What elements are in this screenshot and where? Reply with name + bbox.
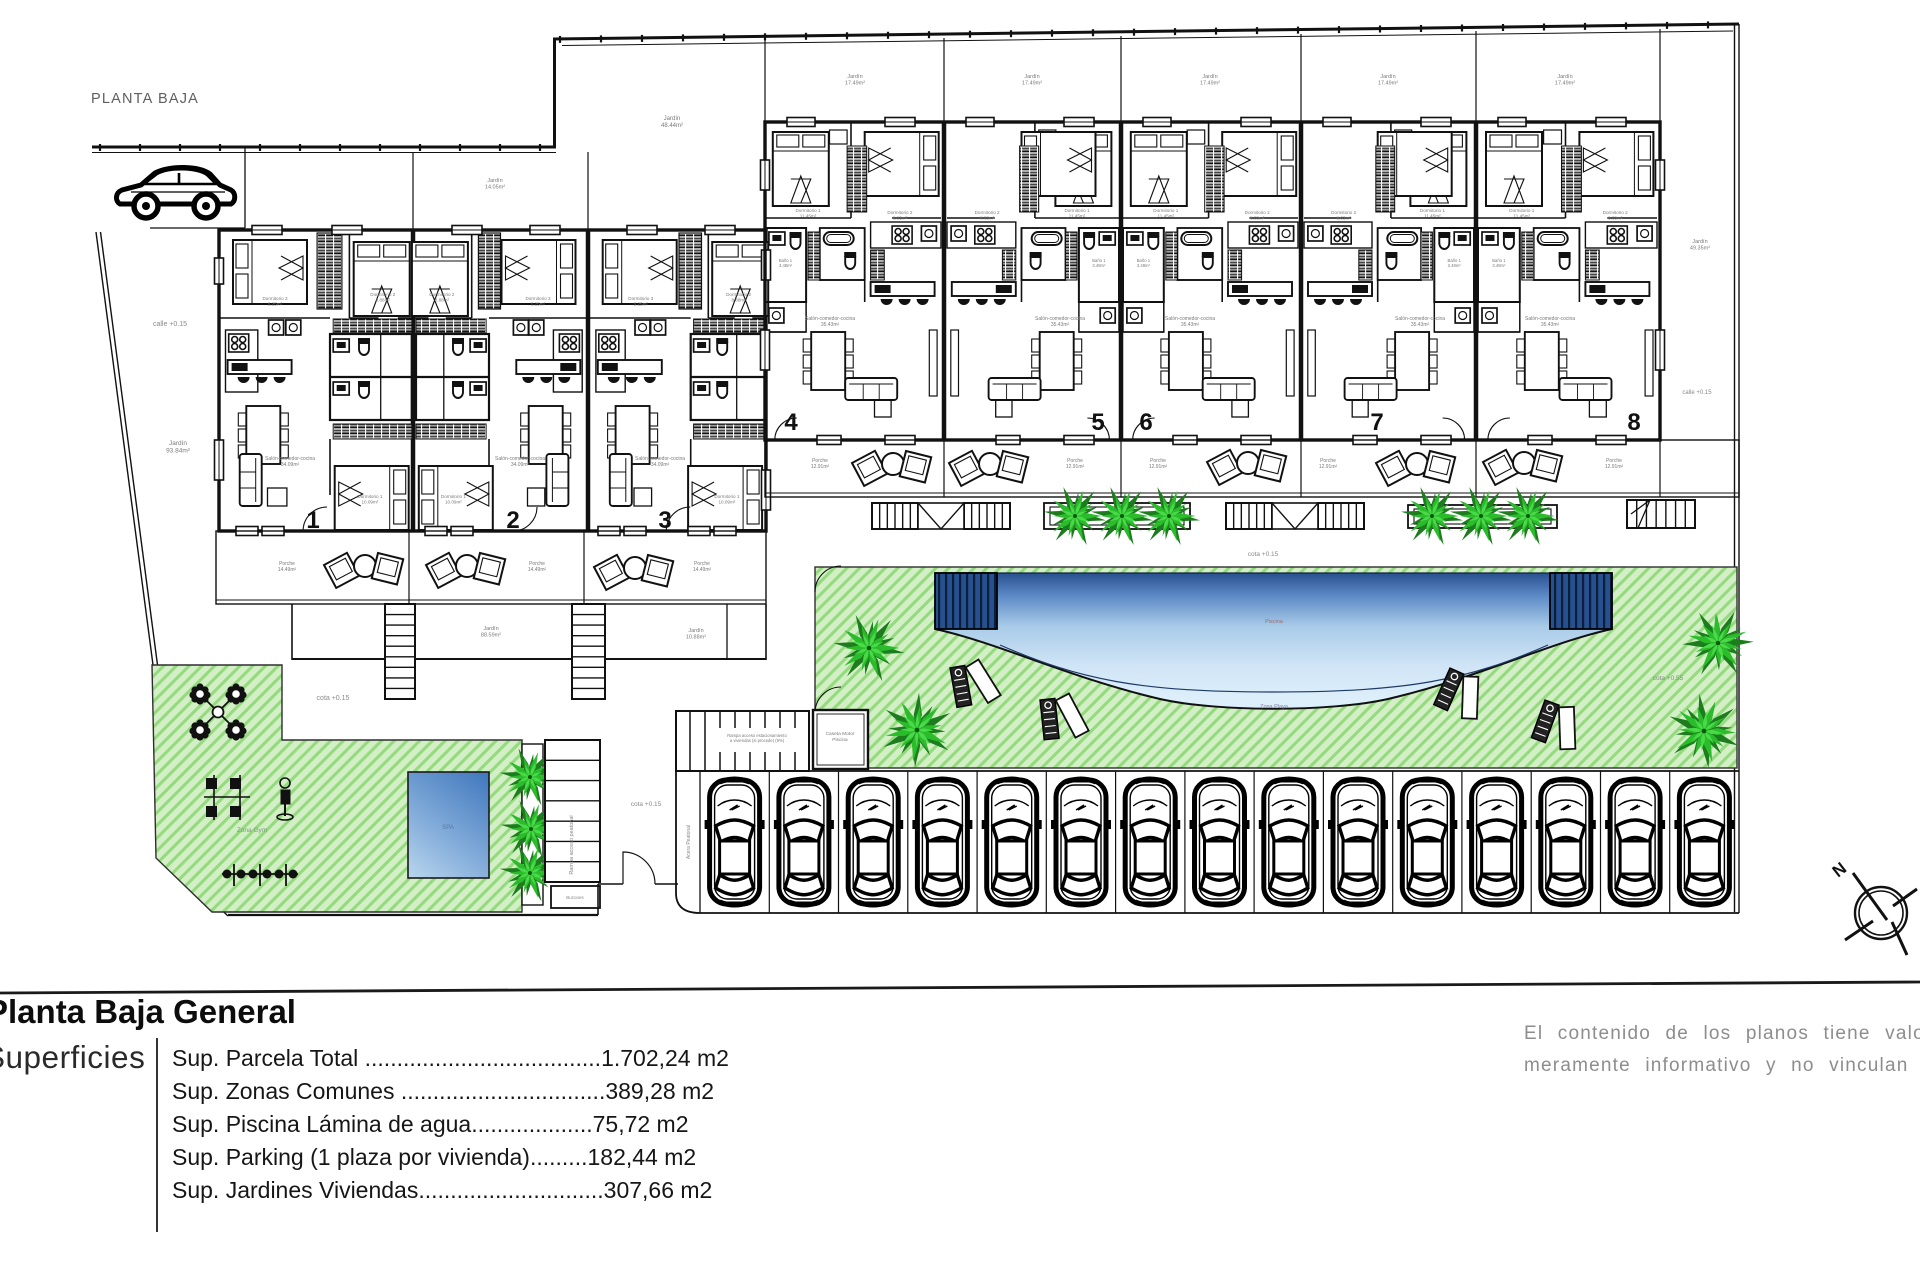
svg-text:Buzones: Buzones <box>566 895 584 900</box>
svg-text:Jardín49.35m²: Jardín49.35m² <box>1690 239 1710 252</box>
svg-text:PLANTA BAJA: PLANTA BAJA <box>91 91 199 107</box>
svg-text:Jardín14.05m²: Jardín14.05m² <box>485 178 505 191</box>
svg-text:1: 1 <box>306 507 319 534</box>
svg-text:Zona Playa: Zona Playa <box>1260 704 1289 710</box>
svg-text:Jardín17.49m²: Jardín17.49m² <box>1200 74 1220 87</box>
svg-text:Baño 13.48m²: Baño 13.48m² <box>779 258 793 268</box>
svg-text:Rampa acceso estacionamientoa: Rampa acceso estacionamientoa viviendas … <box>727 733 787 743</box>
svg-text:Planta Baja General: Planta Baja General <box>0 993 296 1030</box>
svg-text:meramente informativo y no vin: meramente informativo y no vinculan <box>1524 1055 1908 1076</box>
svg-text:Porche14.49m²: Porche14.49m² <box>528 561 547 573</box>
svg-text:7: 7 <box>1370 409 1383 436</box>
svg-text:2: 2 <box>506 507 519 534</box>
svg-text:calle +0.15: calle +0.15 <box>1682 390 1712 396</box>
svg-text:Baño 13.48m²: Baño 13.48m² <box>1092 258 1106 268</box>
svg-text:Porche12.91m²: Porche12.91m² <box>1319 458 1338 470</box>
svg-text:Porche14.49m²: Porche14.49m² <box>693 561 712 573</box>
svg-text:Piscina: Piscina <box>1265 619 1284 625</box>
svg-text:Jardín17.49m²: Jardín17.49m² <box>1022 74 1042 87</box>
svg-text:Jardín17.49m²: Jardín17.49m² <box>845 74 865 87</box>
svg-text:Superficies: Superficies <box>0 1039 145 1075</box>
svg-text:cota +0.15: cota +0.15 <box>317 695 350 702</box>
svg-text:8: 8 <box>1627 409 1640 436</box>
svg-text:Sup. Parcela Total ...........: Sup. Parcela Total .....................… <box>172 1045 729 1071</box>
svg-text:Sup. Piscina Lámina de agua...: Sup. Piscina Lámina de agua.............… <box>172 1111 689 1137</box>
svg-text:Porche12.91m²: Porche12.91m² <box>1066 458 1085 470</box>
svg-text:Porche14.49m²: Porche14.49m² <box>278 561 297 573</box>
svg-text:Porche12.91m²: Porche12.91m² <box>1149 458 1168 470</box>
svg-text:Sup. Jardines Viviendas.......: Sup. Jardines Viviendas.................… <box>172 1177 712 1203</box>
svg-text:Jardín88.59m²: Jardín88.59m² <box>481 626 501 639</box>
svg-text:Jardín17.49m²: Jardín17.49m² <box>1555 74 1575 87</box>
svg-text:6: 6 <box>1139 409 1152 436</box>
svg-text:Sup. Parking (1 plaza por vivi: Sup. Parking (1 plaza por vivienda).....… <box>172 1144 696 1170</box>
svg-text:Zona Gym: Zona Gym <box>237 827 267 834</box>
svg-text:cota +0.55: cota +0.55 <box>1653 675 1684 682</box>
svg-text:SPA: SPA <box>442 825 454 831</box>
svg-text:cota +0.15: cota +0.15 <box>631 801 662 808</box>
svg-text:Rampa acceso peatonal: Rampa acceso peatonal <box>569 815 575 874</box>
svg-text:5: 5 <box>1091 409 1104 436</box>
svg-text:Porche12.91m²: Porche12.91m² <box>811 458 830 470</box>
svg-text:Baño 13.48m²: Baño 13.48m² <box>1448 258 1462 268</box>
svg-text:Baño 13.48m²: Baño 13.48m² <box>1492 258 1506 268</box>
svg-text:Porche12.91m²: Porche12.91m² <box>1605 458 1624 470</box>
svg-text:Jardín48.44m²: Jardín48.44m² <box>661 116 683 129</box>
svg-text:Baño 13.48m²: Baño 13.48m² <box>1137 258 1151 268</box>
svg-text:cota +0.15: cota +0.15 <box>1248 551 1279 558</box>
svg-text:3: 3 <box>658 507 671 534</box>
svg-text:El contenido de los planos tie: El contenido de los planos tiene valo <box>1524 1023 1920 1044</box>
svg-text:Jardín17.49m²: Jardín17.49m² <box>1378 74 1398 87</box>
svg-text:4: 4 <box>784 409 798 436</box>
svg-text:calle +0.15: calle +0.15 <box>153 321 187 328</box>
svg-text:Jardín10.88m²: Jardín10.88m² <box>686 628 706 641</box>
svg-text:Acera Peatonal: Acera Peatonal <box>686 825 692 859</box>
svg-text:Sup. Zonas Comunes ...........: Sup. Zonas Comunes .....................… <box>172 1078 714 1104</box>
